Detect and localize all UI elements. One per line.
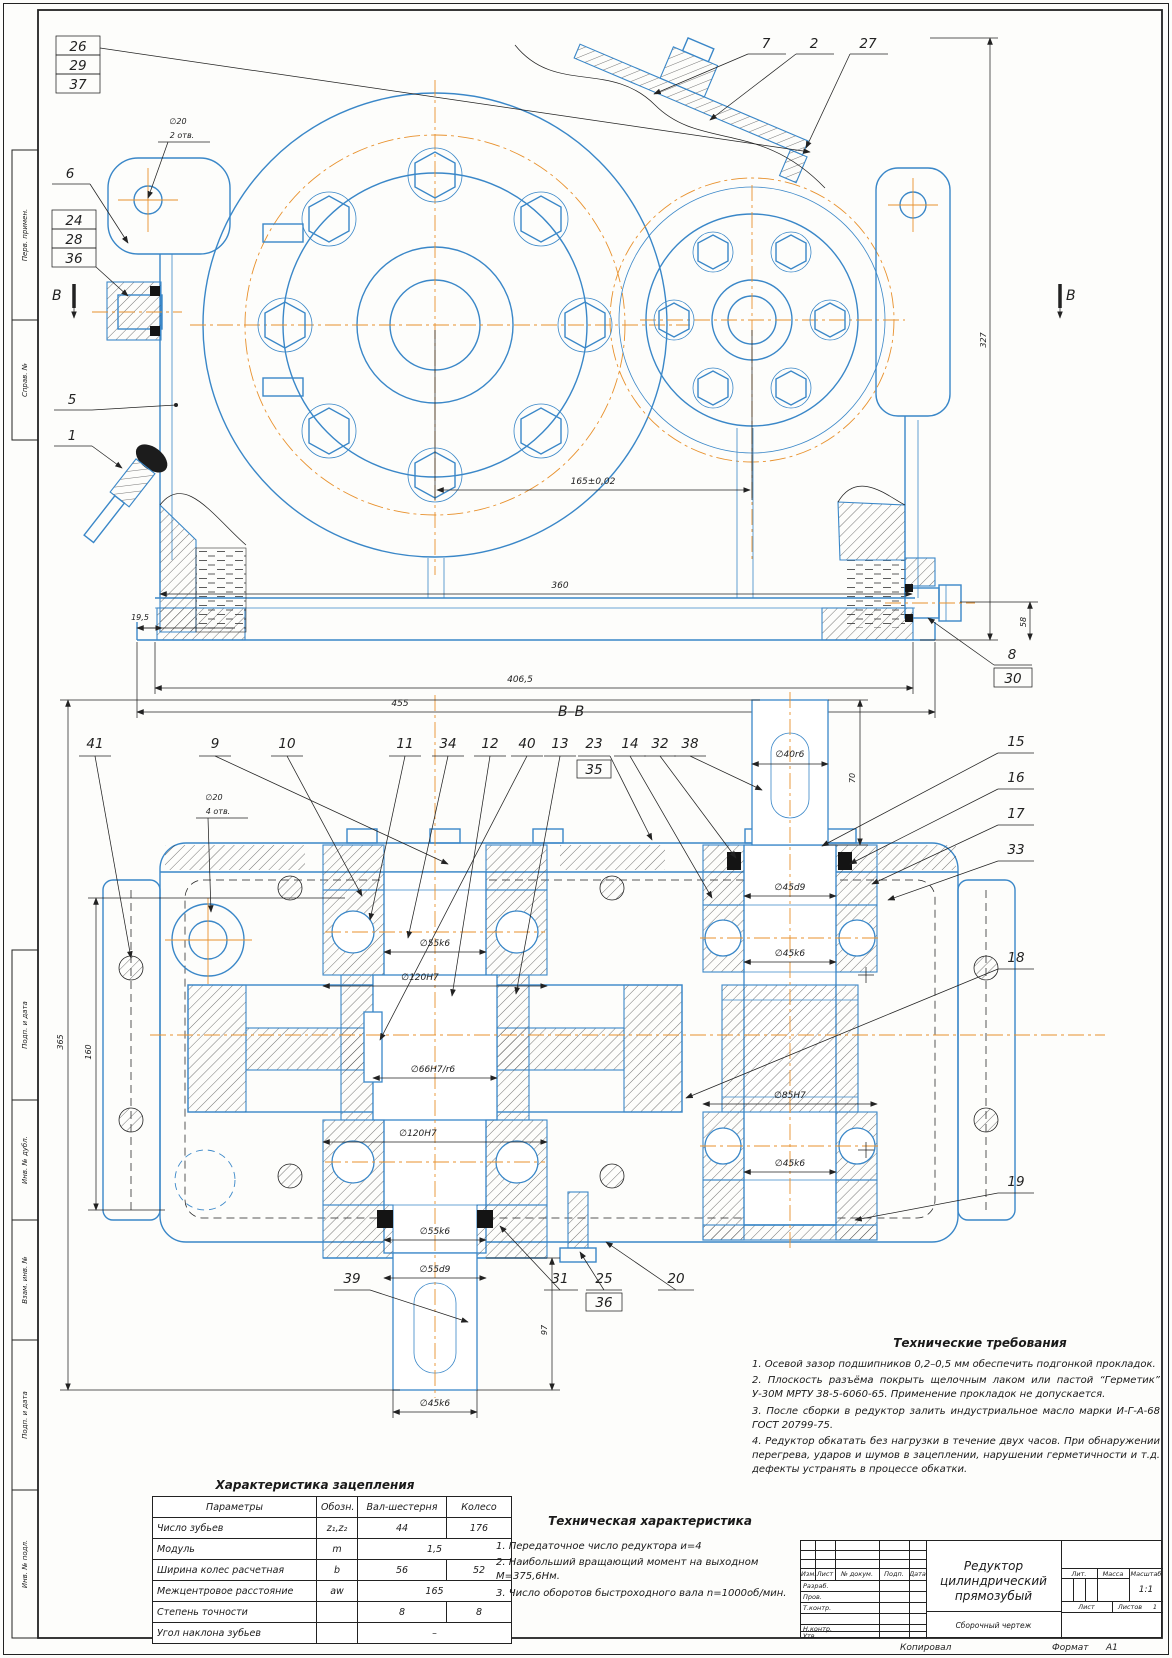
drawing-sheet: Перв. примен. Справ. № Подп. и дата Инв.…: [0, 0, 1172, 1658]
table-row: Угол наклона зубьев –: [153, 1623, 512, 1644]
svg-text:2: 2: [810, 36, 819, 52]
table-row: Число зубьев z₁,z₂ 44 176: [153, 1518, 512, 1539]
svg-text:11: 11: [396, 736, 413, 752]
margin-label: Перв. примен.: [21, 209, 29, 262]
svg-text:1: 1: [68, 428, 77, 444]
svg-text:38: 38: [681, 736, 698, 752]
svg-text:В: В: [1066, 288, 1076, 304]
svg-text:28: 28: [65, 232, 82, 248]
svg-text:36: 36: [65, 251, 82, 267]
tb-sheets: Листов: [1112, 1603, 1148, 1611]
margin-label: Взам. инв. №: [21, 1256, 29, 1304]
section-mark-right: В: [1060, 284, 1076, 318]
svg-text:∅45k6: ∅45k6: [775, 1159, 806, 1169]
gear-rim-right: [624, 985, 682, 1112]
svg-text:6: 6: [66, 166, 75, 182]
shaft-end-cap: [92, 282, 182, 340]
svg-text:5: 5: [68, 392, 77, 408]
mounting-ear-right: [876, 168, 950, 416]
svg-text:41: 41: [86, 736, 103, 752]
tb-col-list: Лист: [815, 1570, 835, 1578]
tb-tkontr: Т.контр.: [803, 1604, 873, 1612]
tb-massa: Масса: [1097, 1570, 1129, 1578]
tb-prov: Пров.: [803, 1593, 873, 1601]
tb-col-doc: № докум.: [835, 1570, 879, 1578]
scale-value: 1:1: [1129, 1585, 1163, 1595]
copied-label: Копировал: [900, 1643, 952, 1653]
svg-text:∅45d9: ∅45d9: [775, 883, 806, 893]
margin-label: Подп. и дата: [21, 1391, 29, 1439]
margin-label: Справ. №: [21, 363, 29, 397]
svg-text:∅45k6: ∅45k6: [420, 1399, 451, 1409]
svg-text:365: 365: [56, 1034, 65, 1049]
svg-text:∅55k6: ∅55k6: [420, 1227, 451, 1237]
margin-label: Инв. № подл.: [21, 1540, 29, 1588]
section-mark-left: В: [52, 284, 74, 318]
oil-level-gauge: [75, 439, 246, 632]
gear-key: [364, 1012, 382, 1082]
gear-rim-left: [188, 985, 246, 1112]
svg-text:97: 97: [540, 1324, 549, 1335]
sheets-value: 1: [1148, 1603, 1162, 1611]
svg-text:∅55k6: ∅55k6: [420, 939, 451, 949]
tb-sheet: Лист: [1061, 1603, 1112, 1611]
svg-text:7: 7: [762, 36, 771, 52]
svg-text:4 отв.: 4 отв.: [206, 807, 230, 816]
svg-text:39: 39: [343, 1271, 360, 1287]
dim-406: 406,5: [507, 675, 533, 685]
svg-text:36: 36: [595, 1295, 612, 1311]
dim-360: 360: [551, 581, 568, 591]
svg-text:∅55d9: ∅55d9: [420, 1265, 451, 1275]
format-value: А1: [1105, 1643, 1118, 1653]
table-row: Степень точности 8 8: [153, 1602, 512, 1623]
svg-text:12: 12: [481, 736, 498, 752]
svg-text:18: 18: [1007, 950, 1024, 966]
tb-col-sign: Подп.: [879, 1570, 909, 1578]
section-view: В–В: [56, 692, 1105, 1418]
tech-req-item: 3. После сборки в редуктор залить индуст…: [752, 1405, 1160, 1433]
tech-char-item: 1. Передаточное число редуктора и=4: [496, 1540, 792, 1554]
document-type: Сборочный чертеж: [928, 1621, 1059, 1630]
svg-text:∅120H7: ∅120H7: [401, 973, 439, 983]
format-label: Формат: [1052, 1643, 1089, 1653]
svg-text:26: 26: [69, 39, 86, 55]
svg-text:19: 19: [1007, 1174, 1024, 1190]
svg-text:∅45k6: ∅45k6: [775, 949, 806, 959]
svg-text:10: 10: [278, 736, 295, 752]
mounting-ear-left: [108, 158, 230, 254]
tech-char-list: 1. Передаточное число редуктора и=4 2. Н…: [496, 1540, 792, 1603]
svg-text:8: 8: [1008, 647, 1017, 663]
svg-text:29: 29: [69, 58, 86, 74]
svg-text:31: 31: [551, 1271, 568, 1287]
tech-req-item: 2. Плоскость разъёма покрыть щелочным ла…: [752, 1374, 1160, 1402]
locating-pin: [560, 1192, 596, 1262]
tb-col-date: Дата: [909, 1570, 926, 1578]
svg-text:33: 33: [1007, 842, 1024, 858]
gear-table-header: Параметры Обозн. Вал-шестерня Колесо: [153, 1497, 512, 1518]
tech-char-title: Техническая характеристика: [500, 1514, 800, 1528]
table-row: Ширина колес расчетная b 56 52: [153, 1560, 512, 1581]
svg-text:27: 27: [859, 36, 877, 52]
breather-assembly: [563, 0, 831, 183]
svg-text:25: 25: [595, 1271, 612, 1287]
svg-text:20: 20: [667, 1271, 684, 1287]
svg-text:14: 14: [621, 736, 638, 752]
tech-req-list: 1. Осевой зазор подшипников 0,2–0,5 мм о…: [752, 1358, 1160, 1480]
tb-lit: Лит.: [1061, 1570, 1097, 1578]
svg-text:70: 70: [848, 773, 857, 783]
svg-text:∅66H7/r6: ∅66H7/r6: [411, 1065, 456, 1075]
svg-text:40: 40: [518, 736, 535, 752]
svg-text:∅120H7: ∅120H7: [399, 1129, 437, 1139]
dim-455: 455: [391, 699, 408, 709]
svg-text:32: 32: [651, 736, 668, 752]
tech-req-item: 4. Редуктор обкатать без нагрузки в тече…: [752, 1435, 1160, 1478]
title-block: Изм. Лист № докум. Подп. Дата Разраб. Пр…: [800, 1540, 1162, 1638]
svg-text:13: 13: [551, 736, 568, 752]
svg-text:23: 23: [585, 736, 602, 752]
housing-base: [137, 598, 935, 640]
svg-text:∅85H7: ∅85H7: [774, 1091, 806, 1101]
svg-text:17: 17: [1007, 806, 1025, 822]
tech-req-item: 1. Осевой зазор подшипников 0,2–0,5 мм о…: [752, 1358, 1160, 1372]
svg-text:34: 34: [439, 736, 456, 752]
hole-note-diameter: ∅20: [169, 117, 186, 126]
table-row: Модуль m 1,5: [153, 1539, 512, 1560]
svg-text:37: 37: [69, 77, 87, 93]
margin-label: Инв. № дубл.: [21, 1136, 29, 1184]
tb-col-izm: Изм.: [801, 1570, 815, 1578]
tech-char-item: 3. Число оборотов быстроходного вала n=1…: [496, 1587, 792, 1601]
svg-text:В: В: [52, 288, 62, 304]
svg-text:24: 24: [65, 213, 82, 229]
svg-text:160: 160: [84, 1044, 93, 1059]
hole-note-count: 2 отв.: [170, 131, 194, 140]
margin-label: Подп. и дата: [21, 1001, 29, 1049]
dim-19: 19,5: [131, 613, 149, 622]
front-view: 165±0,02 360 406,5 455 19,5 327 58 ∅20 2…: [52, 0, 1076, 718]
svg-text:16: 16: [1007, 770, 1024, 786]
svg-text:9: 9: [211, 736, 220, 752]
dim-327: 327: [979, 331, 988, 347]
tb-razrab: Разраб.: [803, 1582, 873, 1590]
tb-scale-label: Масштаб: [1129, 1570, 1163, 1578]
svg-text:∅40r6: ∅40r6: [776, 750, 805, 760]
tech-char-item: 2. Наибольший вращающий момент на выходн…: [496, 1556, 792, 1584]
svg-text:35: 35: [585, 762, 602, 778]
table-row: Межцентровое расстояние aw 165: [153, 1581, 512, 1602]
dim-58: 58: [1019, 617, 1028, 627]
svg-text:30: 30: [1004, 671, 1021, 687]
gear-table-title: Характеристика зацепления: [150, 1478, 480, 1492]
oil-drain-plug: [838, 486, 975, 628]
document-title: Редуктор цилиндрический прямозубый: [928, 1559, 1059, 1604]
tech-req-title: Технические требования: [780, 1336, 1172, 1350]
margin-stamps: Перв. примен. Справ. № Подп. и дата Инв.…: [12, 150, 38, 1638]
svg-text:∅20: ∅20: [205, 793, 222, 802]
section-title: В–В: [558, 704, 584, 720]
svg-text:15: 15: [1007, 734, 1024, 750]
tb-utv: Утв.: [803, 1632, 873, 1640]
gear-table: Параметры Обозн. Вал-шестерня Колесо Чис…: [152, 1496, 512, 1644]
dim-center-distance: 165±0,02: [571, 477, 616, 487]
